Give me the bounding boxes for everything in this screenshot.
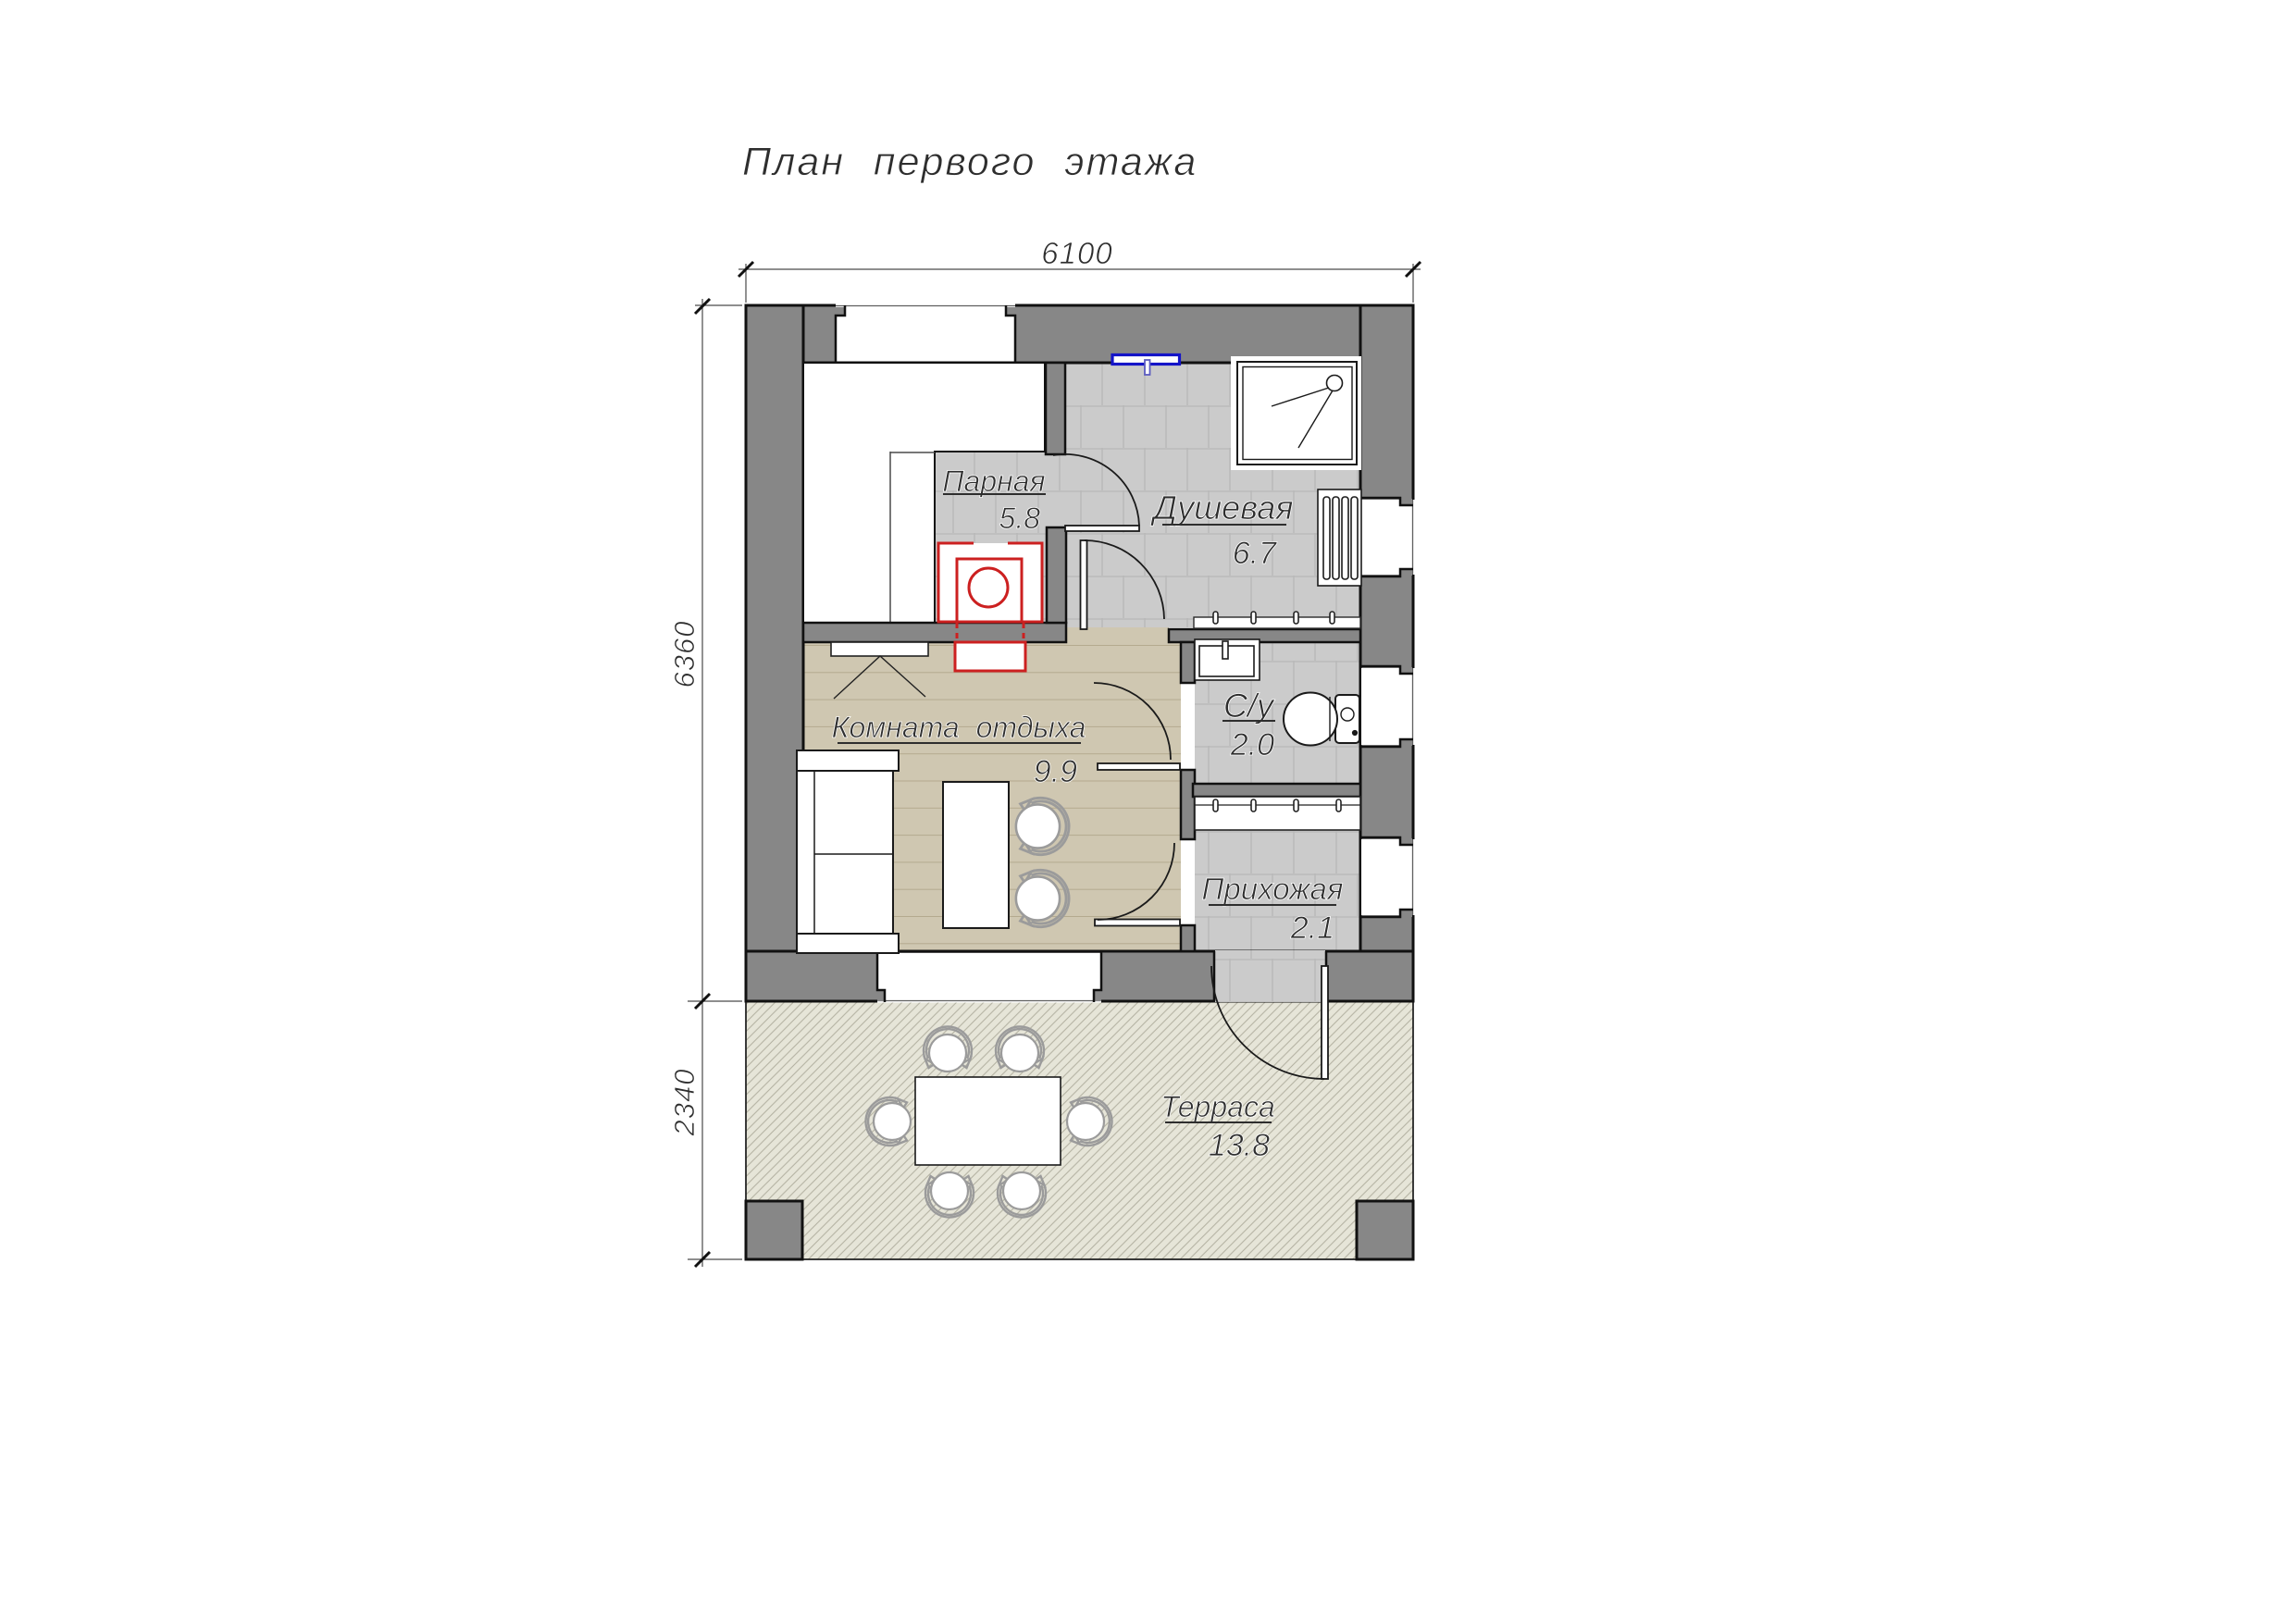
svg-text:2340: 2340 (668, 1069, 701, 1137)
svg-text:13.8: 13.8 (1209, 1128, 1270, 1163)
svg-text:Терраса: Терраса (1160, 1090, 1274, 1123)
svg-text:2.0: 2.0 (1230, 727, 1274, 762)
svg-text:2.1: 2.1 (1290, 911, 1334, 946)
svg-text:Комната отдыха: Комната отдыха (832, 711, 1086, 744)
svg-text:6.7: 6.7 (1233, 536, 1277, 571)
svg-text:5.8: 5.8 (999, 502, 1041, 535)
svg-text:Парная: Парная (942, 465, 1045, 498)
svg-text:План первого этажа: План первого этажа (742, 140, 1198, 184)
svg-text:Прихожая: Прихожая (1201, 872, 1343, 906)
svg-text:9.9: 9.9 (1034, 754, 1077, 789)
svg-text:С/у: С/у (1223, 687, 1275, 725)
svg-text:6360: 6360 (668, 621, 701, 688)
svg-text:Душевая: Душевая (1150, 489, 1294, 527)
svg-text:6100: 6100 (1041, 236, 1112, 270)
